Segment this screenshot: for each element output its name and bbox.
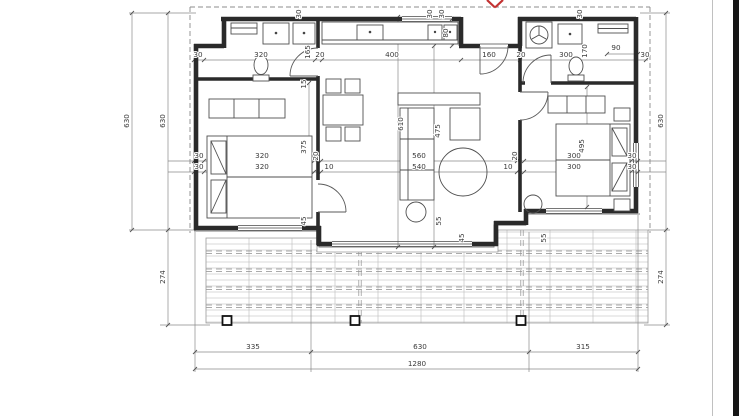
- entrance-threshold: [480, 44, 508, 48]
- armchair: [450, 108, 480, 140]
- dim-label: 165: [303, 45, 312, 59]
- dim-entrance-width: 160: [482, 50, 496, 59]
- dim-label: 15: [299, 79, 308, 88]
- dim-label: 10: [503, 162, 513, 171]
- dim-bottom-335: 335: [246, 342, 260, 351]
- screen-edge-strip: [733, 0, 739, 416]
- dim-label: 45: [457, 233, 466, 242]
- dim-house-depth-left-outer: 630: [122, 114, 131, 128]
- chair: [326, 79, 341, 93]
- bedroom-right-window: [546, 209, 602, 214]
- dim-label: 170: [580, 44, 589, 58]
- wardrobe: [548, 96, 605, 113]
- dim-label: 30: [627, 151, 637, 160]
- dim-label: 495: [577, 139, 586, 153]
- chair: [345, 79, 360, 93]
- dim-living-width: 560: [412, 151, 426, 160]
- dim-terrace-depth-right: 274: [656, 270, 665, 284]
- dim-label: 30: [425, 9, 434, 19]
- dim-label: 20: [516, 50, 526, 59]
- dim-label: 30: [193, 50, 203, 59]
- toilet-icon: [569, 57, 583, 75]
- dim-label: 55: [539, 233, 548, 242]
- dim-label: 10: [324, 162, 334, 171]
- dim-label: 320: [255, 162, 269, 171]
- bedroom-left-door: [318, 184, 346, 212]
- dim-label: 30: [194, 162, 204, 171]
- dim-label: 300: [567, 162, 581, 171]
- dim-label: 475: [433, 124, 442, 138]
- dim-label: 30: [294, 9, 303, 19]
- dim-house-depth-right: 630: [656, 114, 665, 128]
- bedroom-left-window: [238, 226, 302, 231]
- dim-total-width: 1280: [408, 359, 427, 368]
- bedroom-right-door: [520, 92, 548, 120]
- utility-door: [523, 55, 551, 83]
- dim-terrace-depth-left: 274: [158, 270, 167, 284]
- dim-label: 30: [437, 9, 446, 19]
- dim-label: 20: [311, 151, 320, 161]
- dim-label: 30: [194, 151, 204, 160]
- terrace-column: [517, 316, 526, 325]
- tv-bench: [398, 93, 480, 105]
- dim-label: 80: [441, 28, 450, 38]
- wardrobe: [209, 99, 285, 118]
- dim-label: 610: [396, 117, 405, 131]
- dim-label: 30: [575, 9, 584, 19]
- dim-bathroom-width: 320: [254, 50, 268, 59]
- floorplan-drawing: 6306302746302743356303151280303201652040…: [0, 0, 739, 416]
- dim-kitchen-width: 400: [385, 50, 399, 59]
- dim-label: 55: [434, 216, 443, 225]
- nightstand: [614, 199, 630, 211]
- dim-bottom-630: 630: [413, 342, 427, 351]
- terrace-column: [351, 316, 360, 325]
- plant: [406, 202, 426, 222]
- chair: [345, 127, 360, 141]
- living-terrace-door-window: [332, 242, 472, 247]
- bathroom-shelf: [231, 23, 257, 34]
- dim-label: 20: [315, 50, 325, 59]
- dim-label: 375: [299, 140, 308, 154]
- terrace-column: [223, 316, 232, 325]
- floorplan-page: 6306302746302743356303151280303201652040…: [0, 0, 739, 416]
- dim-label: 30: [640, 50, 650, 59]
- dim-label: 540: [412, 162, 426, 171]
- dim-house-depth-left-inner: 630: [158, 114, 167, 128]
- dim-bedroom-left-width: 320: [255, 151, 269, 160]
- dim-utility-width: 300: [559, 50, 573, 59]
- dim-label: 20: [510, 151, 519, 161]
- red-cross-marker: [487, 0, 503, 8]
- dim-label: 30: [627, 162, 637, 171]
- dim-label: 45: [299, 216, 308, 225]
- dining-table: [323, 95, 363, 125]
- dim-label: 90: [611, 43, 621, 52]
- dim-bottom-315: 315: [576, 342, 590, 351]
- nightstand: [614, 108, 630, 121]
- chair: [326, 127, 341, 141]
- page-border-line: [712, 0, 713, 416]
